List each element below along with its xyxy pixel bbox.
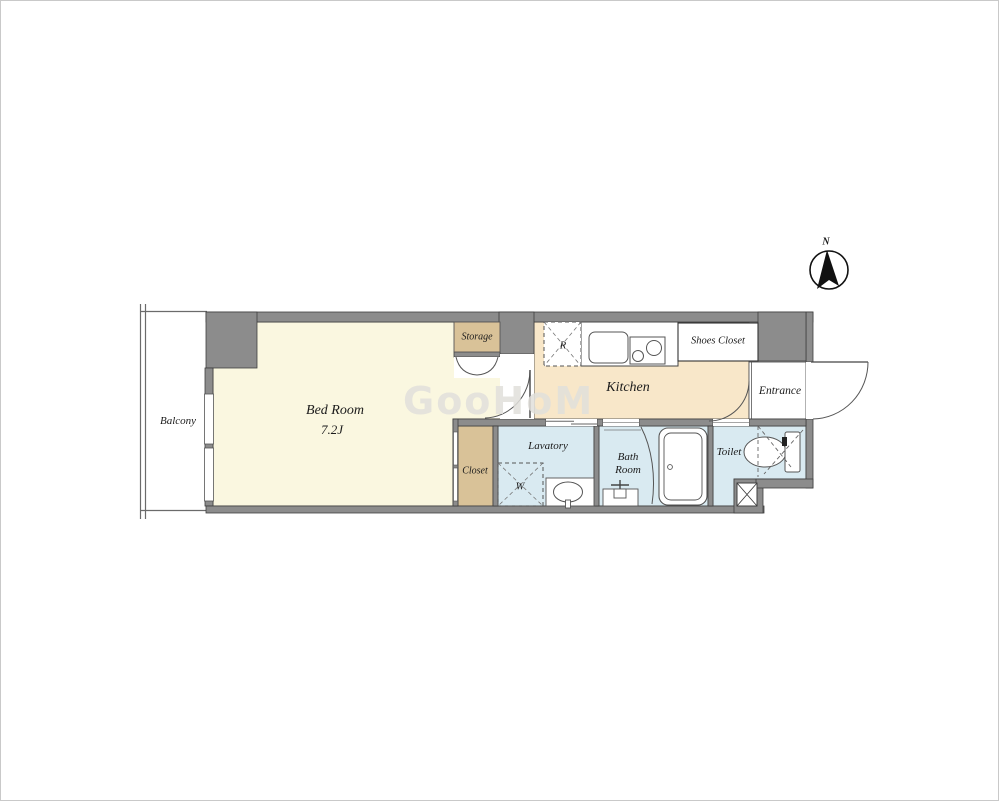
refrigerator-label: R — [560, 341, 566, 352]
bedroom-label: Bed Room — [306, 403, 364, 419]
washer-label: W — [516, 482, 525, 493]
toilet-label: Toilet — [717, 446, 742, 458]
entrance-label: Entrance — [759, 385, 801, 397]
storage-label: Storage — [461, 332, 492, 343]
entrance-door-arc — [813, 362, 868, 419]
entrance-doorway — [806, 362, 813, 419]
compass-north-label: N — [822, 237, 829, 248]
pipe-space-box — [737, 483, 757, 506]
closet-label: Closet — [462, 466, 488, 477]
toilet-handle-mark — [782, 437, 787, 446]
balcony-outline — [141, 304, 208, 519]
lavatory-label: Lavatory — [528, 440, 568, 452]
toilet-bowl-icon — [744, 437, 786, 467]
floor-plan-image: GooHoM Balcony Bed Room 7.2J Storage Kit… — [0, 0, 999, 801]
watermark: GooHoM — [403, 379, 594, 423]
balcony-label: Balcony — [160, 415, 196, 427]
bathroom-label-line2: Room — [615, 464, 641, 476]
kitchen-label: Kitchen — [606, 380, 650, 396]
bathroom-label: Bath Room — [615, 451, 641, 477]
toilet-tank-icon — [785, 432, 800, 472]
shoes-closet-label: Shoes Closet — [691, 336, 745, 347]
lavatory-sink-icon — [554, 482, 583, 502]
lavatory-tap-icon — [566, 500, 571, 508]
bathroom-label-line1: Bath — [618, 451, 639, 463]
bedroom-size-label: 7.2J — [321, 422, 343, 438]
bathtub-icon — [659, 428, 707, 505]
compass-icon — [810, 250, 848, 289]
stove-icon — [630, 337, 665, 364]
kitchen-sink-icon — [589, 332, 628, 363]
